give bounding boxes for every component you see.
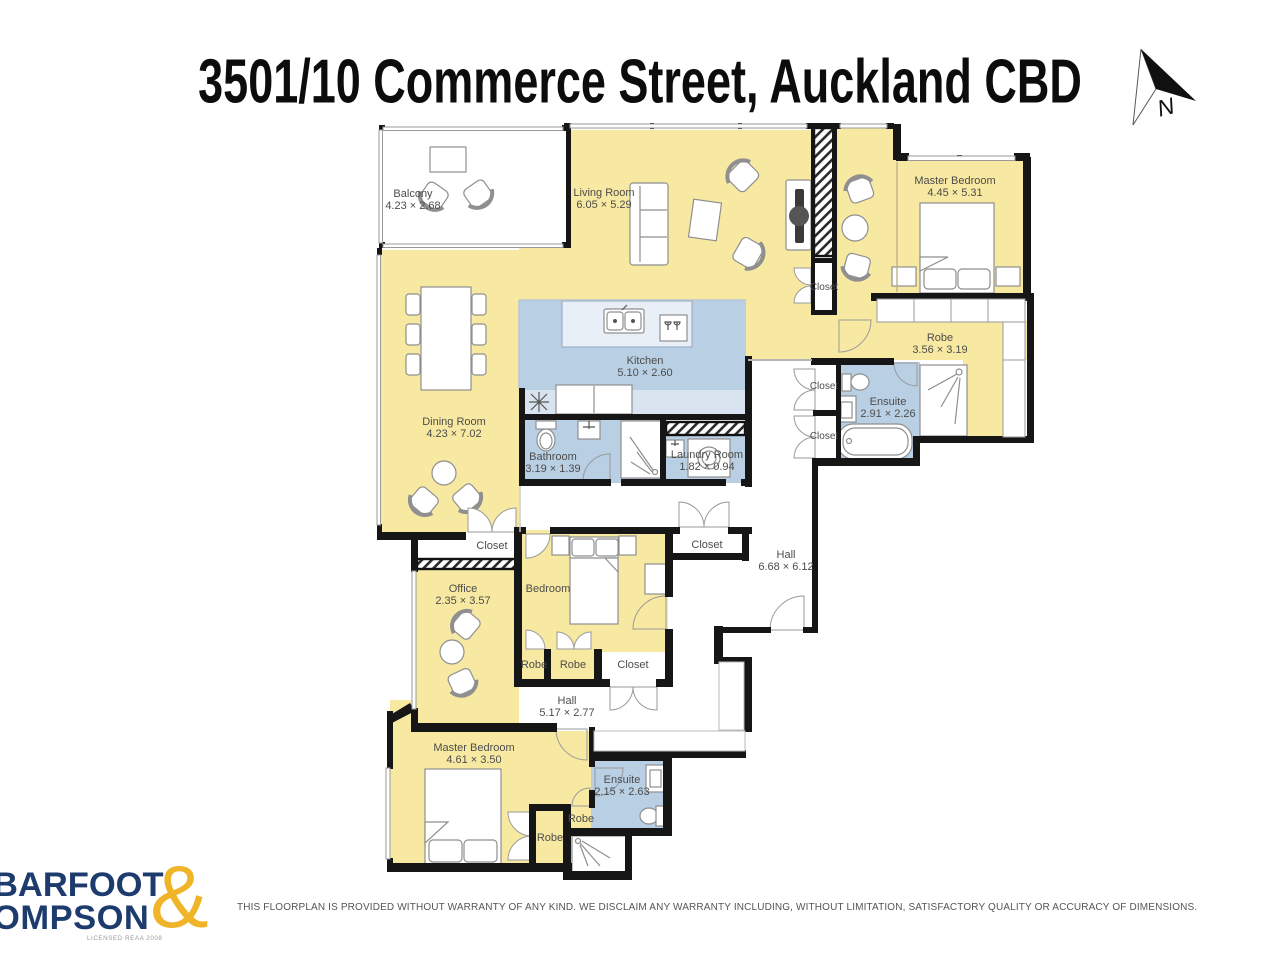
svg-text:LICENSED REAA 2008: LICENSED REAA 2008 [87,935,162,942]
svg-text:Dining Room: Dining Room [422,416,486,428]
svg-text:6.68 × 6.12: 6.68 × 6.12 [758,561,813,573]
svg-text:OMPSON: OMPSON [0,899,149,937]
svg-text:2.91 × 2.26: 2.91 × 2.26 [860,408,915,420]
svg-text:Kitchen: Kitchen [627,355,664,367]
svg-text:&: & [150,847,209,946]
svg-text:Hall: Hall [777,549,796,561]
svg-text:Bathroom: Bathroom [529,451,577,463]
svg-text:Ensuite: Ensuite [870,396,907,408]
svg-text:Closet: Closet [691,539,722,551]
svg-text:1.82 × 0.94: 1.82 × 0.94 [679,461,734,473]
svg-text:Living Room: Living Room [573,187,634,199]
svg-text:Closet: Closet [617,659,648,671]
svg-text:N: N [1155,92,1178,121]
svg-text:Robe: Robe [927,332,953,344]
svg-text:Ensuite: Ensuite [604,774,641,786]
svg-text:Office: Office [449,583,478,595]
svg-text:5.17 × 2.77: 5.17 × 2.77 [539,707,594,719]
svg-text:THIS FLOORPLAN IS PROVIDED WIT: THIS FLOORPLAN IS PROVIDED WITHOUT WARRA… [237,902,1197,913]
svg-text:2.15 × 2.63: 2.15 × 2.63 [594,786,649,798]
svg-text:Closet: Closet [810,431,839,442]
svg-text:4.61 × 3.50: 4.61 × 3.50 [446,754,501,766]
svg-text:5.10 × 2.60: 5.10 × 2.60 [617,367,672,379]
svg-text:Closet: Closet [476,540,507,552]
svg-text:3.19 × 1.39: 3.19 × 1.39 [525,463,580,475]
svg-text:Bedroom: Bedroom [526,583,571,595]
svg-text:Robe: Robe [537,832,563,844]
svg-text:6.05 × 5.29: 6.05 × 5.29 [576,199,631,211]
svg-text:Robe: Robe [568,813,594,825]
svg-text:Robe: Robe [521,659,547,671]
svg-text:4.23 × 7.02: 4.23 × 7.02 [426,428,481,440]
svg-text:Laundry Room: Laundry Room [671,449,743,461]
svg-text:Robe: Robe [560,659,586,671]
svg-text:Closet: Closet [810,282,839,293]
svg-text:Hall: Hall [558,695,577,707]
svg-text:Master Bedroom: Master Bedroom [433,742,514,754]
svg-text:Master Bedroom: Master Bedroom [914,175,995,187]
svg-text:2.35 × 3.57: 2.35 × 3.57 [435,595,490,607]
svg-text:4.45 × 5.31: 4.45 × 5.31 [927,187,982,199]
svg-text:Balcony: Balcony [393,188,433,200]
svg-text:3.56 × 3.19: 3.56 × 3.19 [912,344,967,356]
svg-text:4.23 × 2.68: 4.23 × 2.68 [385,200,440,212]
svg-text:Closet: Closet [810,381,839,392]
